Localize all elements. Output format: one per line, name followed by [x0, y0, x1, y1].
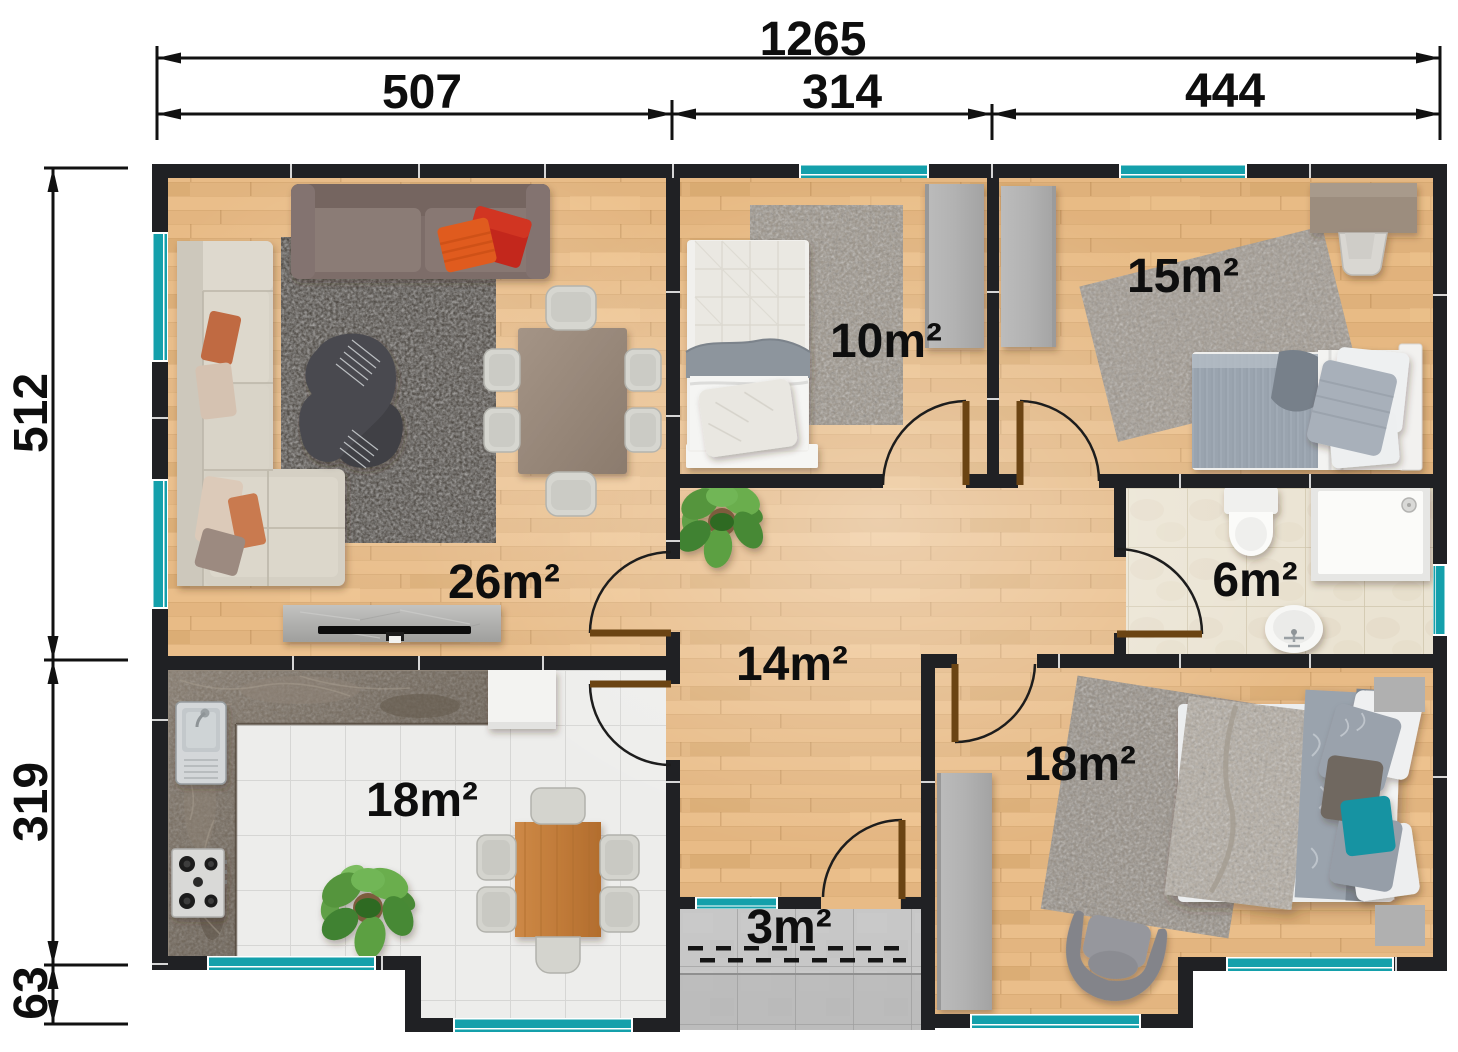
svg-text:63: 63	[5, 966, 58, 1019]
svg-text:6m²: 6m²	[1212, 554, 1297, 607]
svg-text:10m²: 10m²	[830, 315, 942, 368]
svg-text:1265: 1265	[760, 13, 867, 66]
svg-text:444: 444	[1185, 65, 1265, 118]
svg-text:314: 314	[802, 66, 882, 119]
svg-text:15m²: 15m²	[1127, 250, 1239, 303]
svg-text:507: 507	[382, 66, 462, 119]
svg-text:319: 319	[5, 762, 58, 842]
svg-text:512: 512	[5, 373, 58, 453]
svg-text:18m²: 18m²	[1024, 738, 1136, 791]
svg-text:14m²: 14m²	[736, 638, 848, 691]
svg-text:18m²: 18m²	[366, 774, 478, 827]
svg-text:26m²: 26m²	[448, 556, 560, 609]
